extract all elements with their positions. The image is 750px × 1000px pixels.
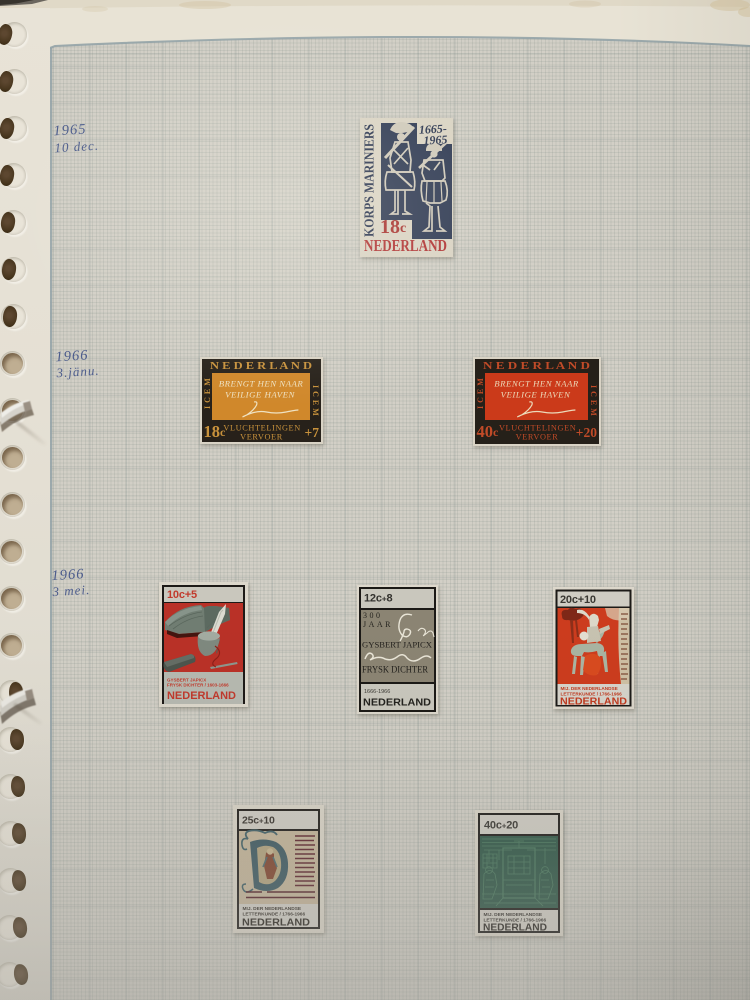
svg-text:VLUCHTELINGEN: VLUCHTELINGEN — [499, 424, 576, 433]
svg-text:12c+8: 12c+8 — [364, 593, 393, 605]
svg-text:ICEM: ICEM — [476, 375, 485, 409]
svg-text:MIJ. DER NEDERLANDSE: MIJ. DER NEDERLANDSE — [561, 686, 618, 691]
svg-text:40c: 40c — [477, 422, 500, 441]
svg-text:300: 300 — [363, 611, 383, 620]
svg-text:ICEM: ICEM — [589, 385, 598, 419]
svg-text:VLUCHTELINGEN: VLUCHTELINGEN — [223, 424, 300, 433]
svg-text:1666-1966: 1666-1966 — [364, 689, 390, 695]
svg-text:NEDERLAND: NEDERLAND — [483, 922, 547, 934]
svg-text:VERVOER: VERVOER — [240, 433, 283, 442]
svg-text:ICEM: ICEM — [311, 385, 320, 419]
svg-text:MIJ. DER NEDERLANDSE: MIJ. DER NEDERLANDSE — [243, 906, 302, 912]
svg-text:+7: +7 — [305, 425, 320, 440]
svg-text:ICEM: ICEM — [203, 375, 212, 409]
svg-text:VERVOER: VERVOER — [516, 433, 559, 442]
svg-text:BRENGT HEN NAAR: BRENGT HEN NAAR — [219, 379, 304, 389]
svg-text:20c+10: 20c+10 — [560, 594, 596, 606]
svg-text:NEDERLAND: NEDERLAND — [560, 696, 627, 708]
svg-text:40c+20: 40c+20 — [484, 820, 518, 832]
svg-text:10c+5: 10c+5 — [167, 589, 197, 601]
svg-text:JAAR: JAAR — [363, 620, 393, 629]
svg-text:NEDERLAND: NEDERLAND — [242, 917, 310, 929]
svg-text:VEILIGE HAVEN: VEILIGE HAVEN — [501, 390, 571, 400]
svg-text:GYSBERT JAPICX: GYSBERT JAPICX — [362, 641, 432, 650]
svg-text:FRYSK DICHTER / 1603-1666: FRYSK DICHTER / 1603-1666 — [167, 683, 229, 688]
svg-text:+20: +20 — [576, 425, 597, 440]
svg-text:NEDERLAND: NEDERLAND — [364, 236, 447, 255]
svg-text:N E D E R L A N D: N E D E R L A N D — [483, 361, 591, 372]
svg-text:25c+10: 25c+10 — [242, 815, 275, 827]
svg-text:NEDERLAND: NEDERLAND — [167, 690, 236, 702]
svg-text:VEILIGE HAVEN: VEILIGE HAVEN — [225, 390, 295, 400]
svg-text:1965: 1965 — [423, 132, 448, 147]
svg-text:BRENGT HEN NAAR: BRENGT HEN NAAR — [494, 379, 579, 389]
svg-text:MIJ. DER NEDERLANDSE: MIJ. DER NEDERLANDSE — [484, 912, 543, 918]
svg-text:KORPS MARINIERS: KORPS MARINIERS — [362, 124, 377, 237]
svg-text:NEDERLAND: NEDERLAND — [363, 697, 431, 709]
svg-text:FRYSK DICHTER: FRYSK DICHTER — [362, 665, 428, 675]
svg-text:N E D E R L A N D: N E D E R L A N D — [210, 361, 312, 372]
